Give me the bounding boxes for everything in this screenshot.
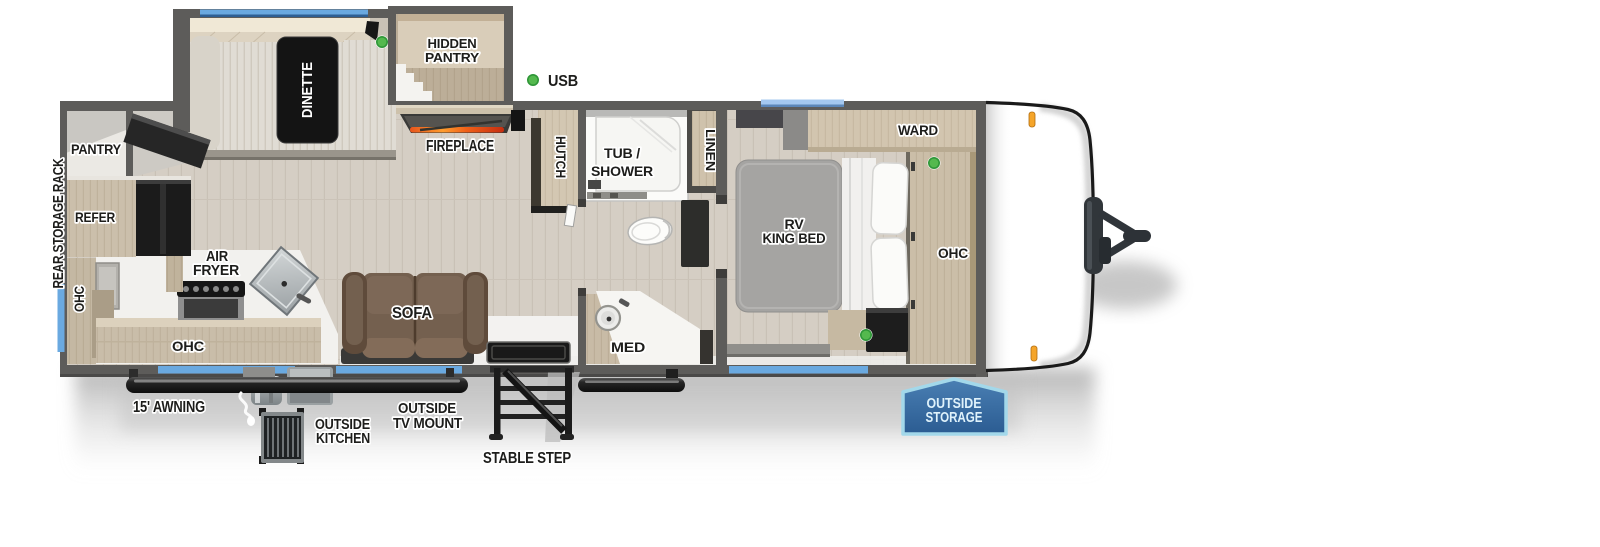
svg-text:FIREPLACE: FIREPLACE — [426, 138, 494, 155]
svg-text:STORAGE: STORAGE — [926, 410, 983, 426]
svg-text:HUTCH: HUTCH — [553, 136, 569, 178]
svg-text:STABLE STEP: STABLE STEP — [483, 450, 571, 467]
svg-text:TUB /: TUB / — [604, 145, 640, 161]
svg-text:REAR STORAGE RACK: REAR STORAGE RACK — [51, 158, 67, 289]
svg-text:LINEN: LINEN — [703, 129, 718, 171]
svg-text:KITCHEN: KITCHEN — [316, 431, 370, 447]
svg-text:TV MOUNT: TV MOUNT — [393, 415, 462, 432]
svg-text:HIDDEN: HIDDEN — [428, 36, 477, 51]
svg-text:REFER: REFER — [75, 209, 115, 225]
svg-text:OHC: OHC — [938, 245, 968, 261]
svg-text:DINETTE: DINETTE — [299, 62, 316, 118]
svg-text:SOFA: SOFA — [392, 305, 433, 322]
svg-text:FRYER: FRYER — [193, 262, 239, 279]
svg-text:PANTRY: PANTRY — [425, 50, 480, 65]
svg-text:OHC: OHC — [72, 286, 87, 312]
svg-text:USB: USB — [548, 73, 578, 90]
svg-text:MED: MED — [611, 339, 645, 355]
svg-text:OHC: OHC — [172, 338, 204, 354]
svg-text:15' AWNING: 15' AWNING — [133, 399, 205, 416]
svg-text:WARD: WARD — [898, 122, 938, 138]
svg-text:SHOWER: SHOWER — [591, 163, 653, 179]
svg-text:PANTRY: PANTRY — [71, 141, 122, 157]
svg-text:KING BED: KING BED — [763, 230, 826, 246]
